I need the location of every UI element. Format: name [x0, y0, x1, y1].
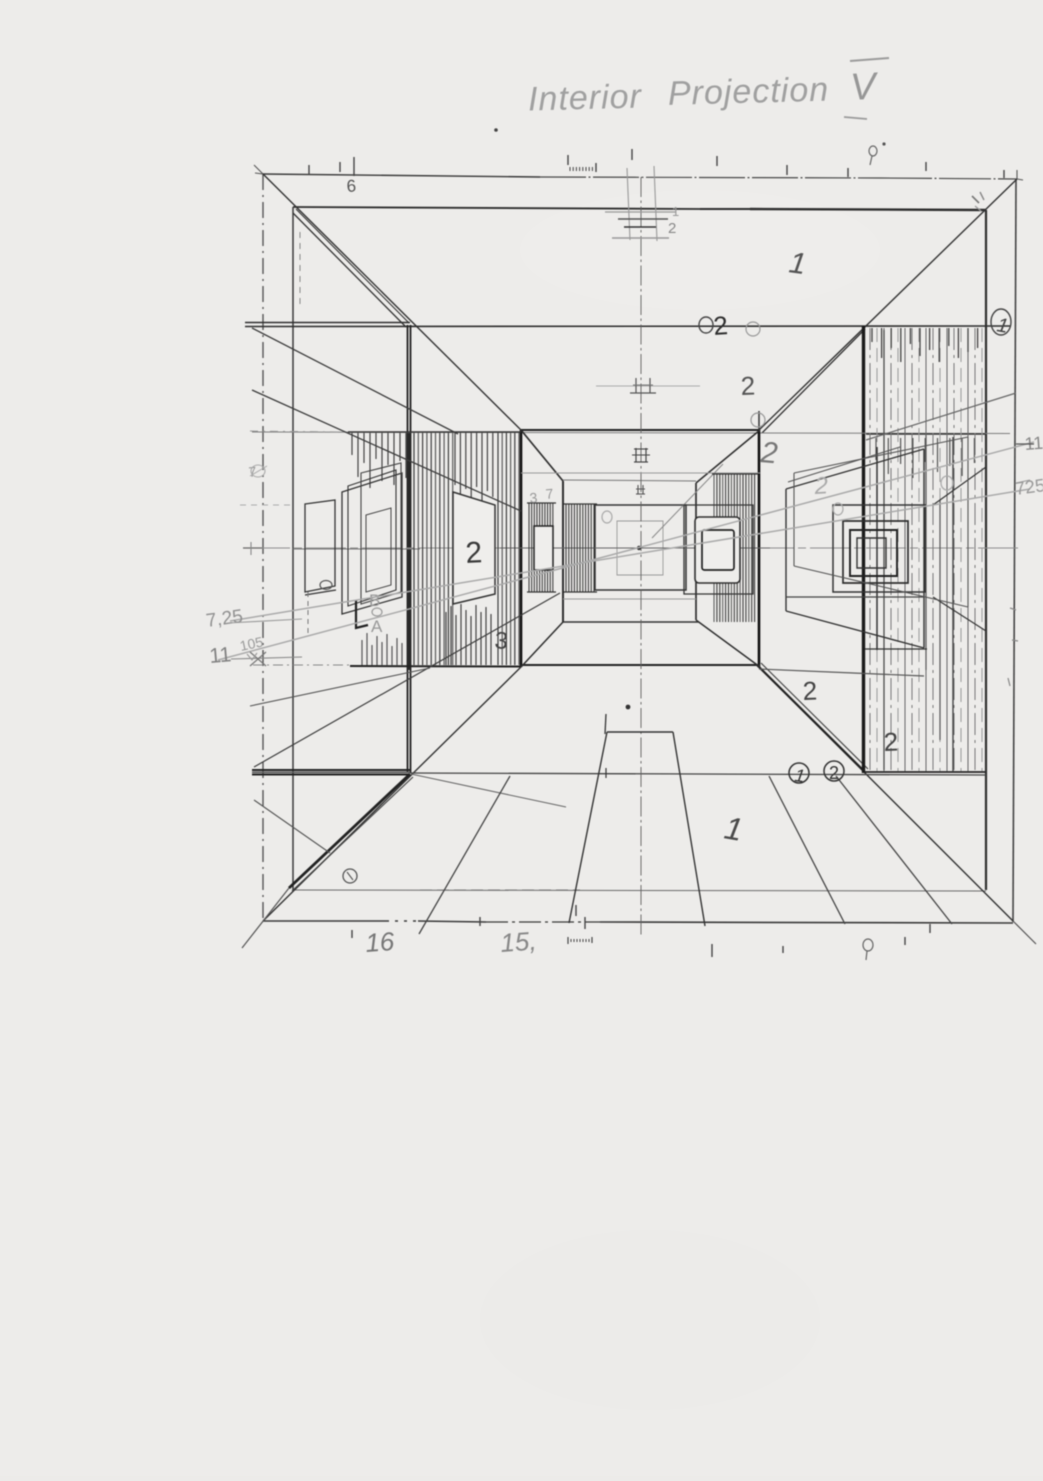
svg-text:A: A	[371, 617, 383, 636]
svg-text:3: 3	[493, 627, 509, 655]
svg-text:2: 2	[802, 676, 818, 706]
svg-text:Projection: Projection	[667, 71, 829, 113]
svg-text:725: 725	[1014, 475, 1043, 499]
svg-text:Interior: Interior	[528, 78, 643, 119]
svg-text:1: 1	[672, 204, 679, 219]
svg-text:2: 2	[740, 371, 756, 401]
svg-text:15,: 15,	[499, 926, 537, 958]
svg-text:11: 11	[208, 643, 232, 668]
svg-text:3: 3	[529, 489, 538, 506]
svg-text:2: 2	[758, 436, 779, 470]
svg-text:16: 16	[364, 926, 395, 958]
svg-text:6: 6	[346, 176, 357, 196]
svg-text:2: 2	[465, 536, 483, 570]
svg-text:2: 2	[712, 310, 729, 341]
svg-text:2: 2	[813, 472, 829, 500]
svg-text:B: B	[369, 591, 380, 610]
svg-text:2: 2	[829, 763, 839, 783]
svg-text:2: 2	[668, 220, 676, 237]
svg-text:2: 2	[883, 727, 899, 757]
svg-text:7: 7	[545, 485, 554, 502]
